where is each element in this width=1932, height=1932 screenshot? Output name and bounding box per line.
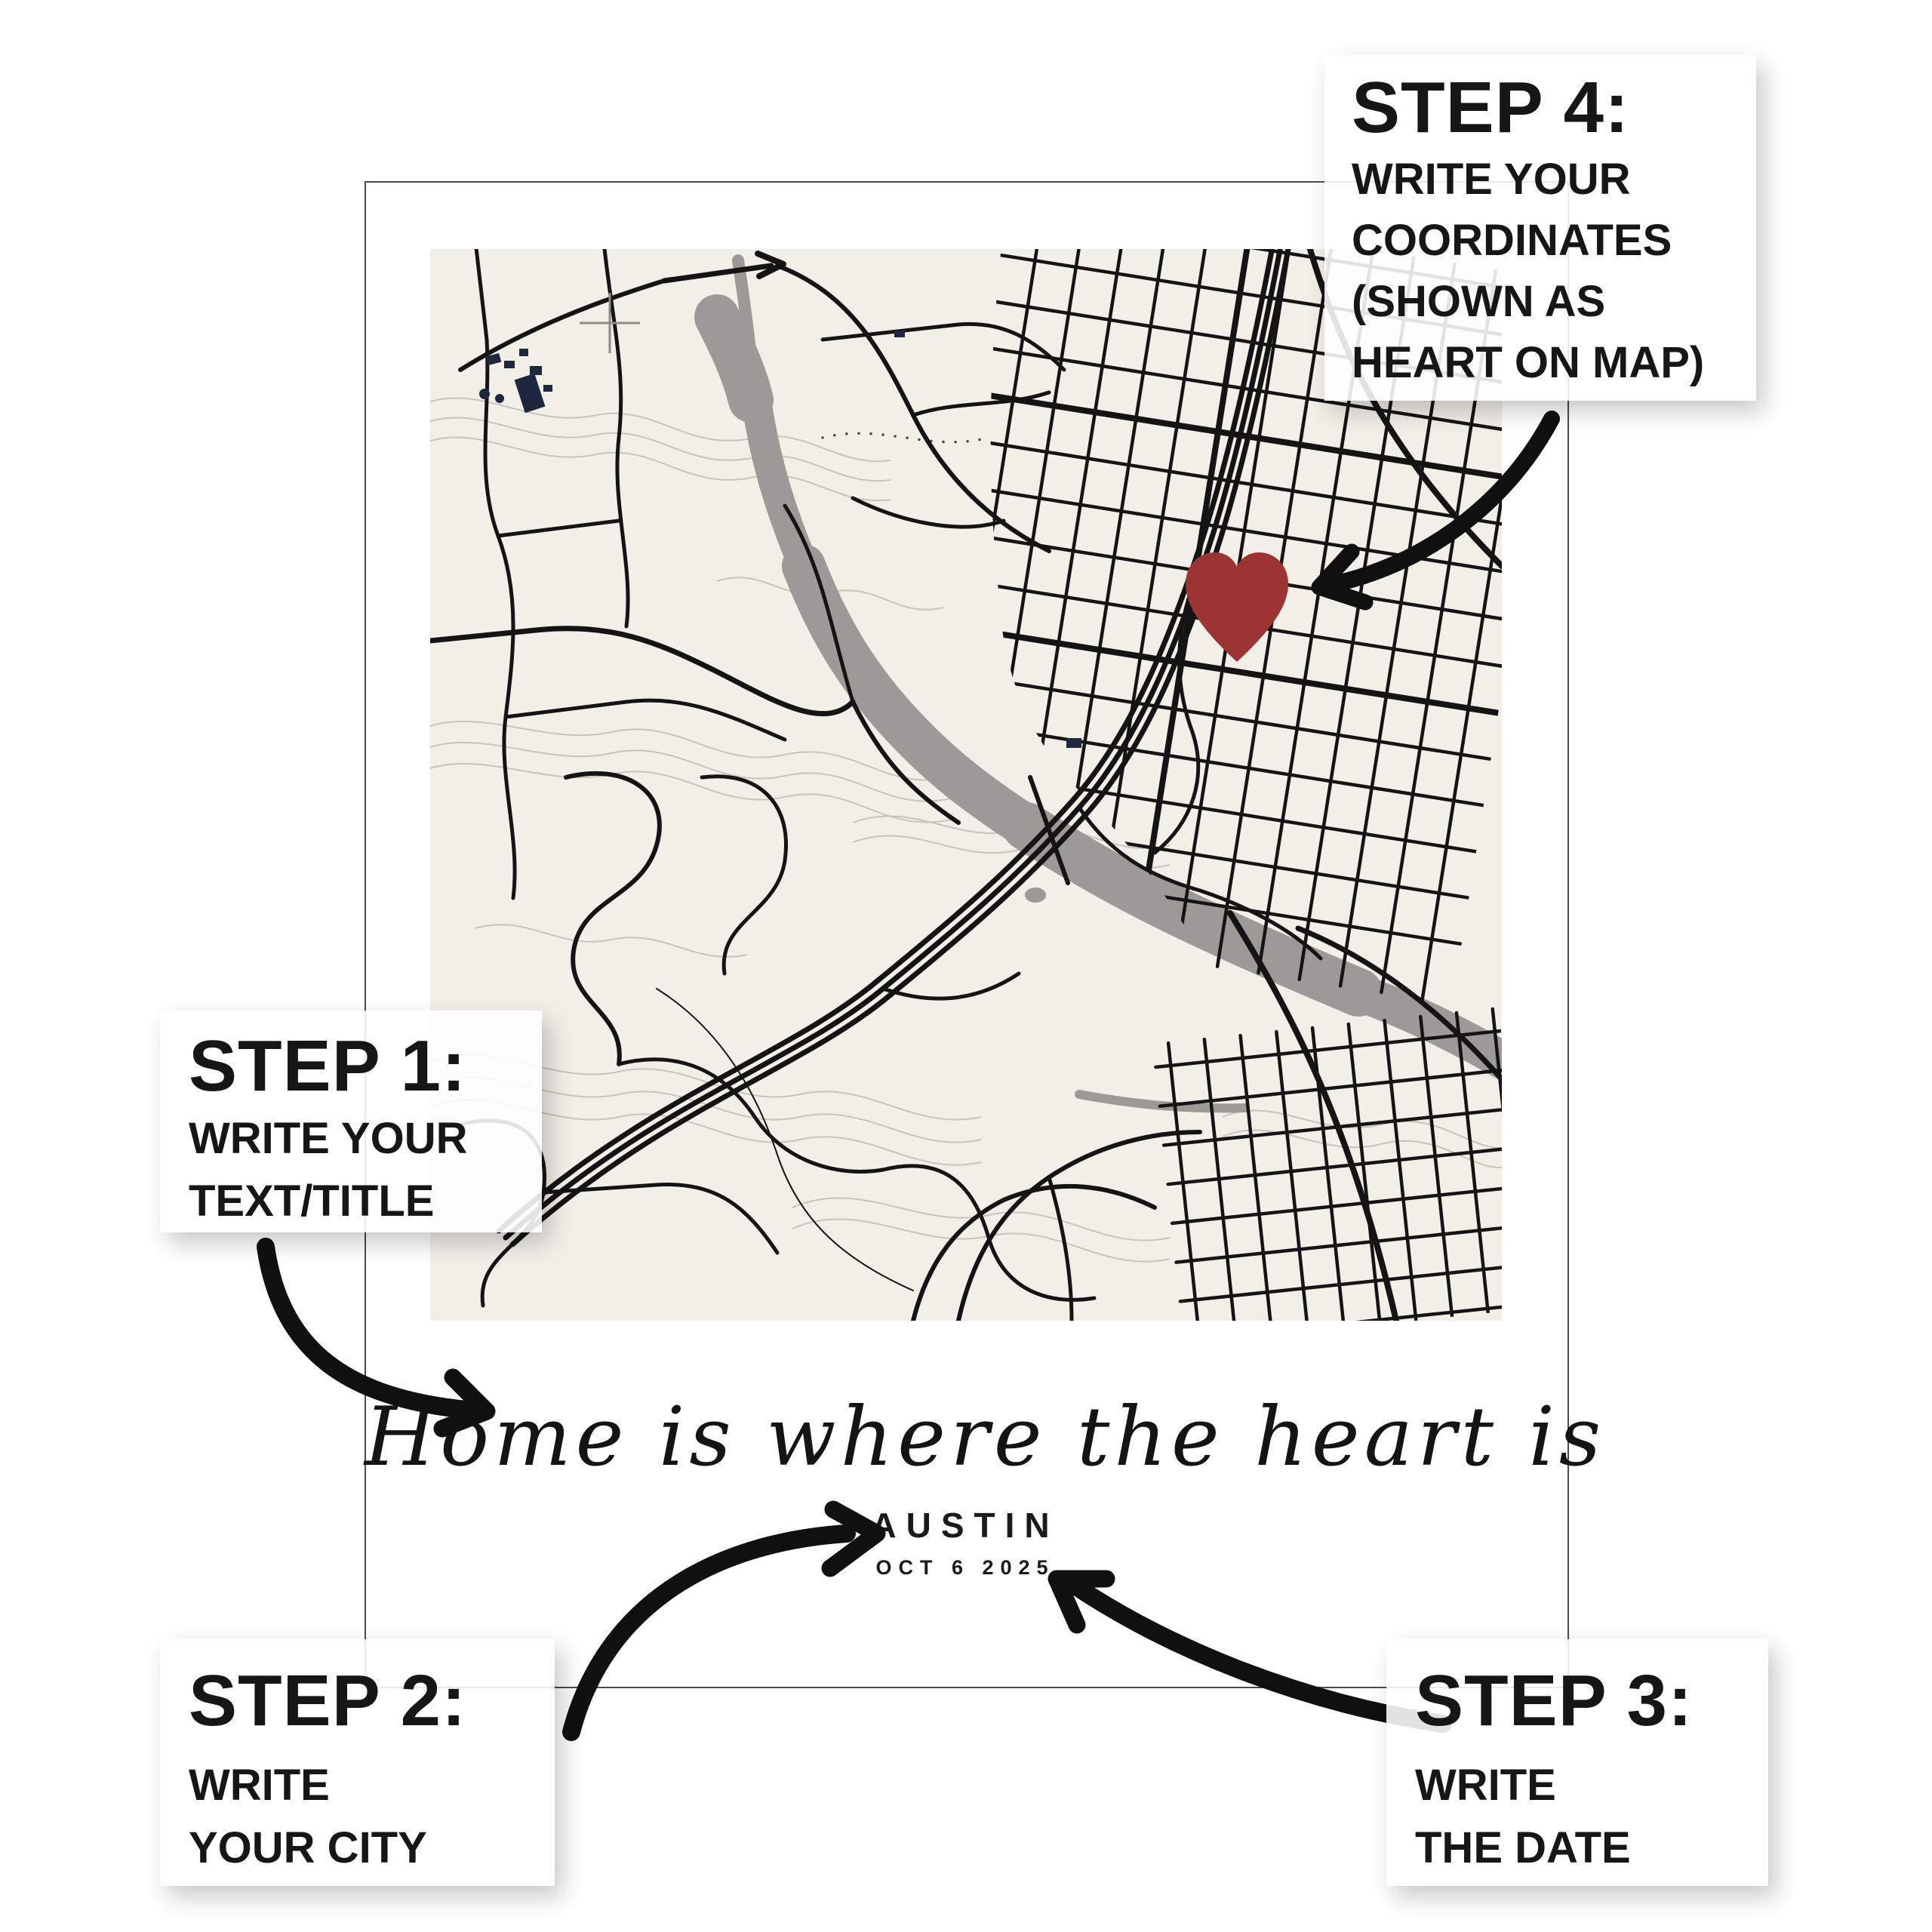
step-4-line: COORDINATES <box>1352 210 1756 271</box>
poster-title-script: Home is where the heart is <box>365 1390 1566 1484</box>
step-1-line: TEXT/TITLE <box>189 1170 542 1233</box>
step-4-line: HEART ON MAP) <box>1352 332 1756 393</box>
poster-city-label: AUSTIN <box>365 1505 1566 1546</box>
step-2-heading: STEP 2: <box>189 1660 555 1742</box>
step-4-line: WRITE YOUR <box>1352 149 1756 210</box>
step-3-line: THE DATE <box>1415 1817 1768 1880</box>
step-4-heading: STEP 4: <box>1352 67 1756 149</box>
step-2-line: YOUR CITY <box>189 1817 555 1880</box>
step-4-line: (SHOWN AS <box>1352 271 1756 332</box>
step-1-line: WRITE YOUR <box>189 1107 542 1171</box>
step-3-heading: STEP 3: <box>1415 1660 1768 1742</box>
step-3-box: STEP 3: WRITE THE DATE <box>1386 1639 1768 1886</box>
map-canvas <box>430 249 1502 1321</box>
step-2-line: WRITE <box>189 1754 555 1817</box>
step-4-box: STEP 4: WRITE YOUR COORDINATES (SHOWN AS… <box>1324 55 1756 401</box>
product-mockup-page: { "poster": { "title_script": "Home is w… <box>0 0 1932 1932</box>
poster-date-label: OCT 6 2025 <box>365 1556 1566 1580</box>
step-3-line: WRITE <box>1415 1754 1768 1817</box>
step-2-box: STEP 2: WRITE YOUR CITY <box>160 1639 555 1886</box>
step-1-box: STEP 1: WRITE YOUR TEXT/TITLE <box>160 1011 542 1232</box>
city-map-image <box>430 249 1502 1321</box>
step-1-heading: STEP 1: <box>189 1026 542 1107</box>
